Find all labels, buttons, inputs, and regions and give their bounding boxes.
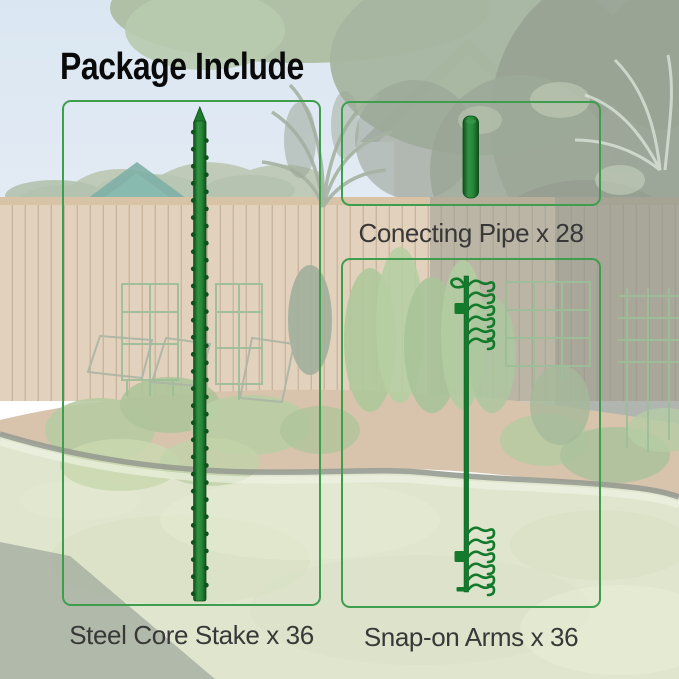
stake-label: Steel Core Stake x 36 (62, 620, 321, 651)
package-include-infographic: Package Include Steel Core Stake x 36 Co… (0, 0, 679, 679)
pipe-label: Conecting Pipe x 28 (341, 218, 601, 249)
arms-label: Snap-on Arms x 36 (341, 622, 601, 653)
page-title: Package Include (60, 46, 304, 89)
pipe-box (341, 101, 601, 206)
stake-box (62, 100, 321, 606)
arms-box (341, 258, 601, 608)
